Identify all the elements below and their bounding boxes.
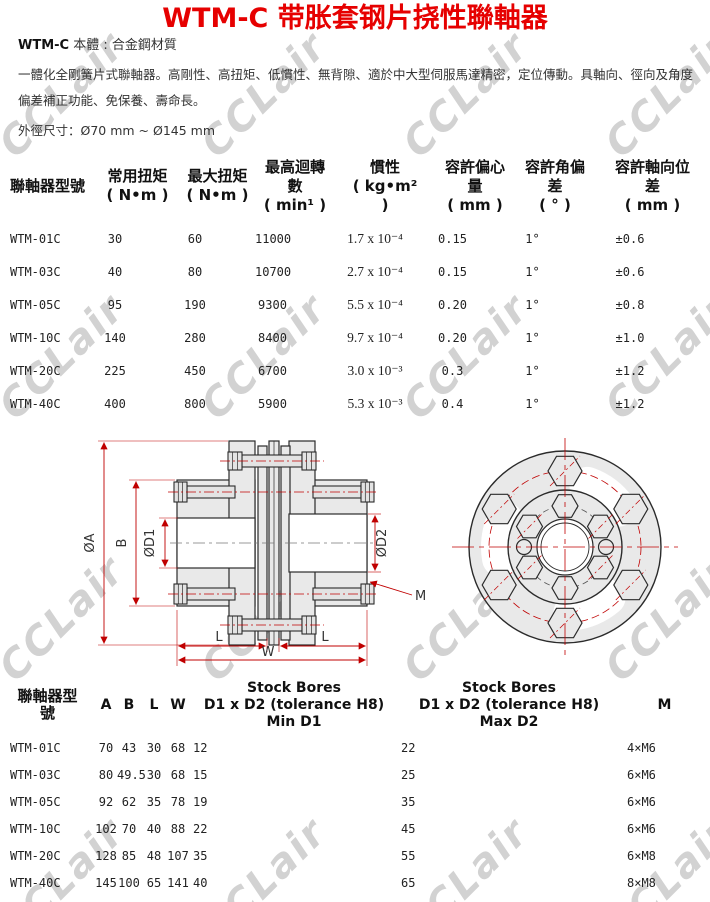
cell-max-speed: 9300 [255, 288, 335, 321]
cell-angular: 1° [515, 288, 595, 321]
outer-size-text: 外徑尺寸：Ø70 mm ~ Ø145 mm [18, 120, 696, 139]
cell-min-d1: 15 [189, 761, 399, 788]
cell-inertia: 5.5 x 10⁻⁴ [335, 288, 435, 321]
header-angular: 容許角偏差( ° ) [515, 150, 595, 222]
cell-max-speed: 6700 [255, 354, 335, 387]
cell-b: 62 [117, 788, 141, 815]
cell-angular: 1° [515, 222, 595, 255]
table-row: WTM-05C9519093005.5 x 10⁻⁴0.201°±0.8 [0, 288, 710, 321]
cell-inertia: 9.7 x 10⁻⁴ [335, 321, 435, 354]
header-line: A [101, 697, 112, 713]
cell-max-torque: 450 [180, 354, 255, 387]
dim-label-w: W [262, 645, 275, 660]
cell-normal-torque: 30 [95, 222, 180, 255]
header-line: ( kg•m² ) [350, 177, 420, 215]
table-row: WTM-10C10270408822456×M6 [0, 815, 710, 842]
cell-a: 102 [95, 815, 117, 842]
header-line: ( N•m ) [186, 186, 250, 205]
cell-model: WTM-03C [0, 255, 95, 288]
dim-label-l-right: L [321, 630, 329, 645]
cell-w: 68 [167, 761, 189, 788]
cell-a: 80 [95, 761, 117, 788]
cell-max-d2: 45 [399, 815, 619, 842]
header-max-torque: 最大扭矩( N•m ) [180, 150, 255, 222]
cell-max-speed: 5900 [255, 387, 335, 420]
cell-inertia: 1.7 x 10⁻⁴ [335, 222, 435, 255]
cell-model: WTM-40C [0, 387, 95, 420]
cell-max-d2: 22 [399, 734, 619, 761]
description-text: 一體化全剛簧片式聯軸器。高剛性、高扭矩、低慣性、無背隙、適於中大型伺服馬達精密，… [18, 62, 696, 114]
cell-w: 88 [167, 815, 189, 842]
cell-model: WTM-40C [0, 869, 95, 896]
spec-table: 聯軸器型號 常用扭矩( N•m ) 最大扭矩( N•m ) 最高迴轉數( min… [0, 150, 710, 420]
header-line: B [124, 697, 135, 713]
table-row: WTM-05C9262357819356×M6 [0, 788, 710, 815]
cell-m: 8×M8 [619, 869, 710, 896]
page-title: WTM-C 带胀套钢片挠性聯軸器 [0, 2, 710, 36]
cell-max-d2: 55 [399, 842, 619, 869]
header-line: 容許角偏差 [523, 158, 587, 196]
cell-m: 6×M6 [619, 788, 710, 815]
cell-a: 92 [95, 788, 117, 815]
cell-max-torque: 280 [180, 321, 255, 354]
header-line: 常用扭矩 [106, 167, 170, 186]
header-line: ( mm ) [443, 196, 507, 215]
cell-l: 35 [141, 788, 167, 815]
cell-w: 68 [167, 734, 189, 761]
cell-a: 145 [95, 869, 117, 896]
cell-model: WTM-05C [0, 288, 95, 321]
cell-eccentricity: 0.15 [435, 255, 515, 288]
cell-min-d1: 35 [189, 842, 399, 869]
header-line: ( mm ) [614, 196, 692, 215]
cell-eccentricity: 0.3 [435, 354, 515, 387]
table-row: WTM-01C3060110001.7 x 10⁻⁴0.151°±0.6 [0, 222, 710, 255]
cell-m: 6×M6 [619, 815, 710, 842]
spec-table-header: 聯軸器型號 常用扭矩( N•m ) 最大扭矩( N•m ) 最高迴轉數( min… [0, 150, 710, 222]
cell-normal-torque: 140 [95, 321, 180, 354]
header-line: ( N•m ) [106, 186, 170, 205]
cell-max-torque: 190 [180, 288, 255, 321]
header-line: D1 x D2 (tolerance H8) [399, 697, 619, 714]
table-row: WTM-10C14028084009.7 x 10⁻⁴0.201°±1.0 [0, 321, 710, 354]
cell-eccentricity: 0.4 [435, 387, 515, 420]
cell-normal-torque: 225 [95, 354, 180, 387]
table-row: WTM-40C40080059005.3 x 10⁻³0.41°±1.2 [0, 387, 710, 420]
cell-l: 40 [141, 815, 167, 842]
dim-label-dia-a: ØA [83, 533, 98, 552]
dim-label-dia-d1: ØD1 [143, 529, 158, 558]
spec-table-body: WTM-01C3060110001.7 x 10⁻⁴0.151°±0.6 WTM… [0, 222, 710, 420]
header-a: A [95, 676, 117, 734]
cell-angular: 1° [515, 387, 595, 420]
dim-label-l-left: L [215, 630, 223, 645]
dimension-table-body: WTM-01C7043306812224×M6 WTM-03C8049.5306… [0, 734, 710, 896]
header-m: M [619, 676, 710, 734]
header-line: ( ° ) [523, 196, 587, 215]
cell-model: WTM-05C [0, 788, 95, 815]
dim-label-m: M [415, 589, 426, 604]
cell-normal-torque: 400 [95, 387, 180, 420]
cell-inertia: 2.7 x 10⁻⁴ [335, 255, 435, 288]
dimension-table-header: 聯軸器型號 A B L W Stock BoresD1 x D2 (tolera… [0, 676, 710, 734]
cell-axial: ±1.0 [595, 321, 710, 354]
cell-normal-torque: 40 [95, 255, 180, 288]
cell-w: 107 [167, 842, 189, 869]
cell-min-d1: 19 [189, 788, 399, 815]
cell-normal-torque: 95 [95, 288, 180, 321]
header-model: 聯軸器型號 [0, 150, 95, 222]
cell-m: 6×M8 [619, 842, 710, 869]
cell-max-speed: 8400 [255, 321, 335, 354]
cell-m: 6×M6 [619, 761, 710, 788]
cell-l: 65 [141, 869, 167, 896]
cell-m: 4×M6 [619, 734, 710, 761]
cell-min-d1: 40 [189, 869, 399, 896]
header-line: Stock Bores [399, 680, 619, 697]
cell-min-d1: 22 [189, 815, 399, 842]
material-line: WTM-C 本體 : 合金鋼材質 [18, 38, 696, 54]
cell-min-d1: 12 [189, 734, 399, 761]
cell-b: 85 [117, 842, 141, 869]
cell-b: 43 [117, 734, 141, 761]
cell-max-d2: 65 [399, 869, 619, 896]
cell-max-speed: 11000 [255, 222, 335, 255]
cell-b: 70 [117, 815, 141, 842]
model-code: WTM-C [18, 38, 69, 53]
cell-model: WTM-10C [0, 815, 95, 842]
cell-model: WTM-20C [0, 354, 95, 387]
header-b: B [117, 676, 141, 734]
cell-max-speed: 10700 [255, 255, 335, 288]
cell-axial: ±0.6 [595, 255, 710, 288]
cell-eccentricity: 0.20 [435, 288, 515, 321]
table-row: WTM-40C1451006514140658×M8 [0, 869, 710, 896]
cell-inertia: 5.3 x 10⁻³ [335, 387, 435, 420]
table-row: WTM-20C22545067003.0 x 10⁻³0.31°±1.2 [0, 354, 710, 387]
header-line: M [658, 697, 672, 713]
header-line: 容許偏心量 [443, 158, 507, 196]
cell-eccentricity: 0.15 [435, 222, 515, 255]
dim-label-b: B [115, 539, 130, 548]
header-w: W [167, 676, 189, 734]
front-flange [452, 438, 678, 658]
dim-label-dia-d2: ØD2 [375, 529, 390, 558]
table-row: WTM-20C128854810735556×M8 [0, 842, 710, 869]
header-line: 聯軸器型號 [0, 177, 95, 196]
cell-model: WTM-01C [0, 222, 95, 255]
header-model: 聯軸器型號 [0, 676, 95, 734]
cell-model: WTM-20C [0, 842, 95, 869]
cell-max-d2: 35 [399, 788, 619, 815]
header-line: 最高迴轉數 [263, 158, 327, 196]
cell-max-torque: 60 [180, 222, 255, 255]
header-stock-bores-max: Stock BoresD1 x D2 (tolerance H8)Max D2 [399, 676, 619, 734]
cell-max-torque: 80 [180, 255, 255, 288]
header-stock-bores-min: Stock BoresD1 x D2 (tolerance H8)Min D1 [189, 676, 399, 734]
header-line: 最大扭矩 [186, 167, 250, 186]
header-line: 容許軸向位差 [614, 158, 692, 196]
table-row: WTM-03C8049.5306815256×M6 [0, 761, 710, 788]
cell-axial: ±1.2 [595, 354, 710, 387]
cell-axial: ±1.2 [595, 387, 710, 420]
cell-eccentricity: 0.20 [435, 321, 515, 354]
cell-angular: 1° [515, 255, 595, 288]
cell-max-torque: 800 [180, 387, 255, 420]
intro-section: WTM-C 本體 : 合金鋼材質 一體化全剛簧片式聯軸器。高剛性、高扭矩、低慣性… [18, 38, 696, 139]
page: { "page": { "title": "WTM-C 带胀套钢片挠性聯軸器",… [0, 0, 710, 902]
header-line: W [170, 697, 185, 713]
front-view-drawing [438, 430, 702, 674]
datasheet: CCLairCCLairCCLairCCLairCCLairCCLairCCLa… [0, 0, 710, 902]
header-line: Stock Bores [189, 680, 399, 697]
header-line: Min D1 [189, 714, 399, 731]
cell-axial: ±0.6 [595, 222, 710, 255]
cell-model: WTM-01C [0, 734, 95, 761]
cell-l: 48 [141, 842, 167, 869]
header-max-speed: 最高迴轉數( min¹ ) [255, 150, 335, 222]
cell-a: 128 [95, 842, 117, 869]
header-line: 聯軸器型號 [16, 688, 80, 722]
cell-axial: ±0.8 [595, 288, 710, 321]
cell-angular: 1° [515, 354, 595, 387]
header-row: 聯軸器型號 常用扭矩( N•m ) 最大扭矩( N•m ) 最高迴轉數( min… [0, 150, 710, 222]
header-line: Max D2 [399, 714, 619, 731]
header-line: L [150, 697, 159, 713]
cell-w: 78 [167, 788, 189, 815]
cell-angular: 1° [515, 321, 595, 354]
header-line: D1 x D2 (tolerance H8) [189, 697, 399, 714]
header-line: ( min¹ ) [263, 196, 327, 215]
table-row: WTM-03C4080107002.7 x 10⁻⁴0.151°±0.6 [0, 255, 710, 288]
header-line: 慣性 [350, 158, 420, 177]
header-normal-torque: 常用扭矩( N•m ) [95, 150, 180, 222]
dimension-table: 聯軸器型號 A B L W Stock BoresD1 x D2 (tolera… [0, 676, 710, 896]
cell-a: 70 [95, 734, 117, 761]
cell-b: 100 [117, 869, 141, 896]
header-row: 聯軸器型號 A B L W Stock BoresD1 x D2 (tolera… [0, 676, 710, 734]
header-l: L [141, 676, 167, 734]
cell-b: 49.5 [117, 761, 141, 788]
cell-model: WTM-03C [0, 761, 95, 788]
side-view-drawing: ØA B ØD1 ØD2 L L W M [82, 418, 426, 680]
header-axial: 容許軸向位差( mm ) [595, 150, 710, 222]
header-eccentricity: 容許偏心量( mm ) [435, 150, 515, 222]
material-text: 本體 : 合金鋼材質 [73, 38, 177, 53]
cell-w: 141 [167, 869, 189, 896]
cell-l: 30 [141, 734, 167, 761]
table-row: WTM-01C7043306812224×M6 [0, 734, 710, 761]
header-inertia: 慣性( kg•m² ) [335, 150, 435, 222]
cell-inertia: 3.0 x 10⁻³ [335, 354, 435, 387]
cell-max-d2: 25 [399, 761, 619, 788]
cell-model: WTM-10C [0, 321, 95, 354]
